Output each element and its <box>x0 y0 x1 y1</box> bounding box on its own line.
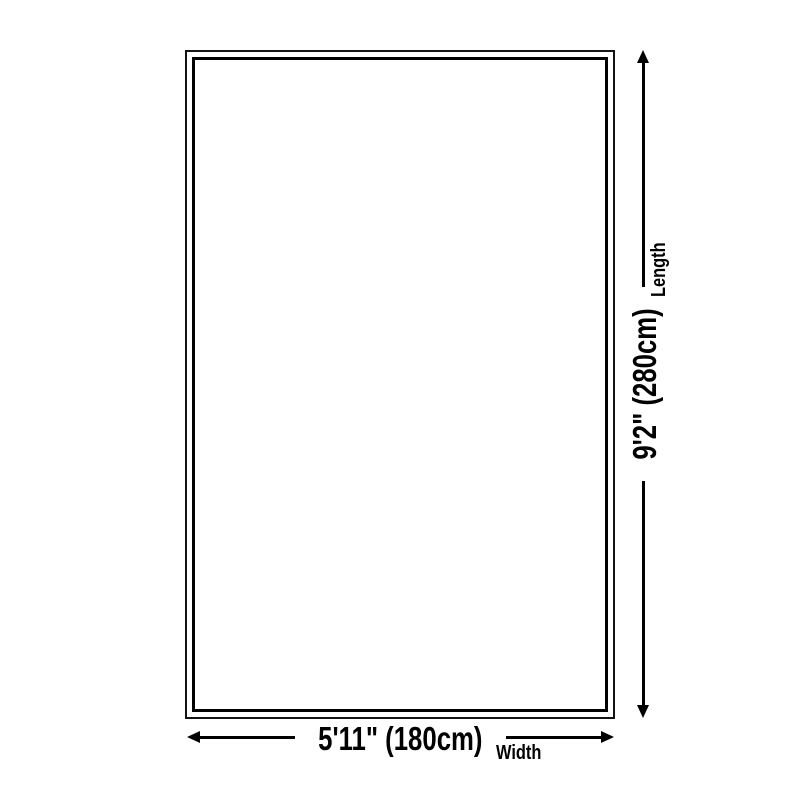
rug-size-diagram: 5'11" (180cm) Width 9'2" (280cm) Length <box>0 0 800 800</box>
width-dimension-line-right <box>506 736 601 739</box>
arrowhead-down-icon <box>637 705 649 718</box>
rug-outer-border <box>185 50 615 719</box>
width-dimension-arrow: 5'11" (180cm) Width <box>187 717 614 757</box>
length-value-block: 9'2" (280cm) <box>623 287 663 481</box>
width-dimension-right-segment: Width <box>506 717 614 757</box>
arrowhead-right-icon <box>601 731 614 743</box>
arrowhead-up-icon <box>637 50 649 63</box>
length-dimension-top-segment: Length <box>623 50 663 287</box>
arrowhead-left-icon <box>187 731 200 743</box>
width-dimension-line-left <box>200 736 295 739</box>
length-axis-label: Length <box>649 242 669 297</box>
width-value-block: 5'11" (180cm) <box>295 717 506 757</box>
length-dimension-arrow: 9'2" (280cm) Length <box>623 50 663 718</box>
width-value: 5'11" (180cm) <box>318 722 482 755</box>
rug-inner-border <box>192 57 608 712</box>
length-dimension-line-top <box>642 63 645 287</box>
length-dimension-line-bottom <box>642 481 645 705</box>
width-axis-label: Width <box>496 743 541 763</box>
length-value: 9'2" (280cm) <box>628 308 661 459</box>
